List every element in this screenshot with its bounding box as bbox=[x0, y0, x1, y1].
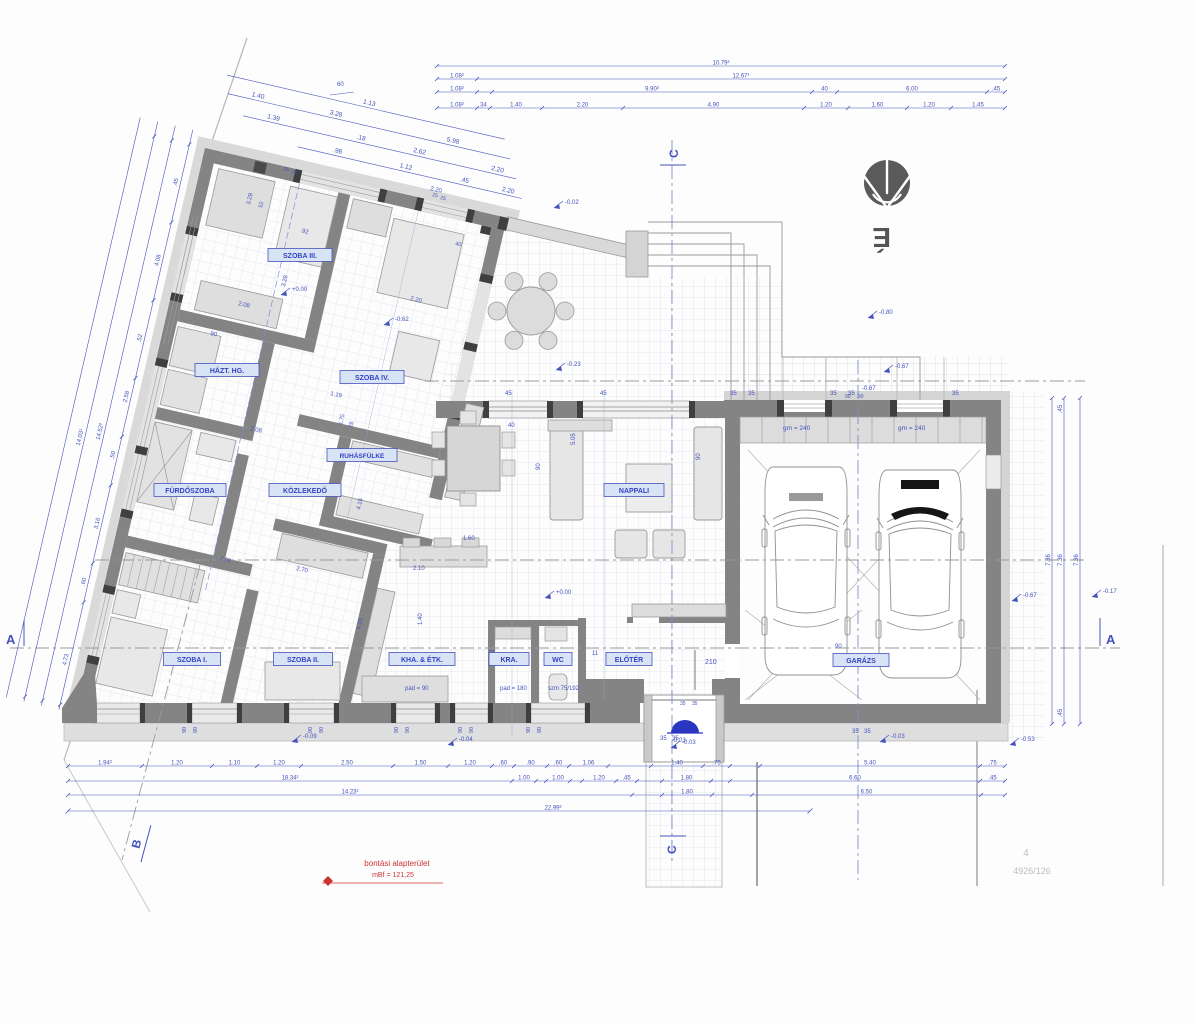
svg-text:C: C bbox=[667, 149, 681, 158]
svg-text:90: 90 bbox=[405, 727, 411, 733]
svg-text:4: 4 bbox=[1023, 848, 1029, 859]
svg-text:90: 90 bbox=[308, 727, 314, 733]
svg-text:WC: WC bbox=[552, 657, 564, 664]
svg-text:FÜRDŐSZOBA: FÜRDŐSZOBA bbox=[165, 486, 214, 495]
svg-text:-0.02: -0.02 bbox=[565, 200, 579, 206]
svg-text:12.67¹: 12.67¹ bbox=[732, 74, 749, 80]
svg-text:1.40: 1.40 bbox=[418, 613, 424, 625]
svg-text:1.20: 1.20 bbox=[171, 761, 183, 767]
svg-text:NAPPALI: NAPPALI bbox=[619, 488, 649, 495]
svg-text:RUHÁSFÜLKE: RUHÁSFÜLKE bbox=[340, 451, 385, 460]
svg-text:1.00: 1.00 bbox=[552, 776, 564, 782]
svg-text:-0.67: -0.67 bbox=[862, 386, 876, 392]
svg-text:35: 35 bbox=[852, 729, 859, 735]
svg-text:45: 45 bbox=[600, 391, 607, 397]
svg-text:1.20: 1.20 bbox=[464, 761, 476, 767]
svg-text:7.36: 7.36 bbox=[1058, 554, 1064, 566]
svg-text:6.60: 6.60 bbox=[849, 776, 861, 782]
svg-text:90: 90 bbox=[394, 727, 400, 733]
svg-text:90: 90 bbox=[537, 727, 543, 733]
svg-text:-0.67: -0.67 bbox=[1023, 593, 1037, 599]
svg-text:90: 90 bbox=[319, 727, 325, 733]
svg-text:-0.80: -0.80 bbox=[879, 310, 893, 316]
svg-text:2.10: 2.10 bbox=[413, 566, 425, 572]
svg-text:90: 90 bbox=[193, 727, 199, 733]
svg-text:1.08²: 1.08² bbox=[450, 87, 464, 93]
svg-text:-0.17: -0.17 bbox=[1103, 589, 1117, 595]
svg-text:.75: .75 bbox=[988, 761, 997, 767]
svg-text:1.40: 1.40 bbox=[671, 761, 683, 767]
svg-text:bontási alapterület: bontási alapterület bbox=[364, 859, 430, 868]
svg-text:-0.04: -0.04 bbox=[459, 737, 473, 743]
svg-text:35: 35 bbox=[864, 729, 871, 735]
svg-text:7.36: 7.36 bbox=[1074, 554, 1080, 566]
svg-text:mBf = 121,25: mBf = 121,25 bbox=[372, 872, 414, 879]
svg-text:szm 75/192: szm 75/192 bbox=[548, 686, 580, 692]
svg-text:35: 35 bbox=[660, 736, 667, 742]
svg-text:6.50: 6.50 bbox=[861, 790, 873, 796]
svg-text:C: C bbox=[665, 845, 679, 854]
svg-text:90: 90 bbox=[458, 727, 464, 733]
svg-text:1.94²: 1.94² bbox=[98, 761, 112, 767]
svg-text:.45: .45 bbox=[622, 776, 631, 782]
svg-text:.45: .45 bbox=[1058, 708, 1064, 717]
svg-text:-0.03: -0.03 bbox=[891, 734, 905, 740]
svg-text:KHA. & ÉTK.: KHA. & ÉTK. bbox=[401, 655, 443, 664]
svg-text:35: 35 bbox=[748, 391, 755, 397]
svg-text:.75: .75 bbox=[712, 761, 721, 767]
svg-text:1.80: 1.80 bbox=[681, 776, 693, 782]
svg-text:1.20: 1.20 bbox=[273, 761, 285, 767]
svg-text:-0.53: -0.53 bbox=[1021, 737, 1035, 743]
svg-text:1.06: 1.06 bbox=[583, 761, 595, 767]
svg-text:90: 90 bbox=[469, 727, 475, 733]
svg-text:SZOBA IV.: SZOBA IV. bbox=[355, 375, 389, 382]
svg-text:14.23²: 14.23² bbox=[341, 790, 358, 796]
svg-text:1.20: 1.20 bbox=[820, 103, 832, 109]
svg-text:6.00: 6.00 bbox=[906, 87, 918, 93]
svg-text:18.34²: 18.34² bbox=[281, 776, 298, 782]
svg-text:.45: .45 bbox=[988, 776, 997, 782]
svg-text:1.20: 1.20 bbox=[593, 776, 605, 782]
svg-text:SZOBA I.: SZOBA I. bbox=[177, 657, 207, 664]
svg-text:KÖZLEKEDŐ: KÖZLEKEDŐ bbox=[283, 486, 328, 495]
svg-text:35: 35 bbox=[692, 701, 698, 707]
svg-text:22.99²: 22.99² bbox=[544, 806, 561, 812]
svg-text:90: 90 bbox=[845, 394, 851, 400]
svg-text:90: 90 bbox=[696, 453, 702, 460]
svg-text:34: 34 bbox=[480, 103, 487, 109]
svg-text:1.45: 1.45 bbox=[972, 103, 984, 109]
svg-text:1.10: 1.10 bbox=[229, 761, 241, 767]
svg-text:.90: .90 bbox=[526, 761, 535, 767]
svg-text:gm = 240: gm = 240 bbox=[783, 425, 811, 432]
svg-text:-0.62: -0.62 bbox=[395, 317, 409, 323]
svg-text:1.60: 1.60 bbox=[463, 536, 475, 542]
svg-text:210: 210 bbox=[705, 659, 717, 666]
svg-text:.60: .60 bbox=[554, 761, 563, 767]
svg-text:-0.09: -0.09 bbox=[303, 734, 317, 740]
svg-text:+0.00: +0.00 bbox=[556, 590, 572, 596]
svg-text:-0.67: -0.67 bbox=[895, 364, 909, 370]
svg-text:É: É bbox=[872, 222, 891, 253]
svg-text:1.08²: 1.08² bbox=[450, 103, 464, 109]
svg-text:HÁZT. HG.: HÁZT. HG. bbox=[210, 366, 244, 375]
svg-text:SZOBA II.: SZOBA II. bbox=[287, 657, 319, 664]
svg-text:10.79²: 10.79² bbox=[712, 61, 729, 67]
svg-text:GARÁZS: GARÁZS bbox=[846, 656, 876, 665]
svg-text:.45: .45 bbox=[1058, 404, 1064, 413]
svg-text:90: 90 bbox=[858, 394, 864, 400]
svg-text:ELŐTÉR: ELŐTÉR bbox=[615, 655, 643, 664]
svg-text:pad = 90: pad = 90 bbox=[405, 686, 429, 692]
svg-text:90: 90 bbox=[182, 727, 188, 733]
svg-text:KRA.: KRA. bbox=[500, 657, 517, 664]
svg-text:-0.23: -0.23 bbox=[567, 362, 581, 368]
svg-text:A: A bbox=[6, 632, 16, 647]
svg-text:A: A bbox=[1106, 632, 1116, 647]
svg-text:35: 35 bbox=[952, 391, 959, 397]
svg-text:35: 35 bbox=[730, 391, 737, 397]
svg-text:40: 40 bbox=[821, 87, 828, 93]
svg-text:gm = 240: gm = 240 bbox=[898, 425, 926, 432]
svg-text:90: 90 bbox=[536, 463, 542, 470]
svg-text:90: 90 bbox=[526, 727, 532, 733]
svg-text:35: 35 bbox=[830, 391, 837, 397]
svg-text:60: 60 bbox=[337, 82, 344, 88]
svg-text:pad = 180: pad = 180 bbox=[500, 686, 528, 692]
svg-text:SZOBA III.: SZOBA III. bbox=[283, 253, 317, 260]
svg-text:9.90²: 9.90² bbox=[645, 87, 659, 93]
svg-text:.60: .60 bbox=[499, 761, 508, 767]
svg-text:1.50: 1.50 bbox=[415, 761, 427, 767]
svg-text:4926/126: 4926/126 bbox=[1013, 866, 1051, 876]
svg-text:1.80: 1.80 bbox=[681, 790, 693, 796]
svg-text:7.36: 7.36 bbox=[1046, 554, 1052, 566]
svg-text:-0.03: -0.03 bbox=[682, 740, 696, 746]
svg-text:+0.00: +0.00 bbox=[292, 287, 308, 293]
svg-text:.45: .45 bbox=[992, 87, 1001, 93]
svg-text:2.20: 2.20 bbox=[577, 103, 589, 109]
svg-text:2.50: 2.50 bbox=[341, 761, 353, 767]
svg-text:4.90: 4.90 bbox=[708, 103, 720, 109]
svg-text:90: 90 bbox=[835, 644, 842, 650]
svg-text:45: 45 bbox=[505, 391, 512, 397]
svg-text:1.00: 1.00 bbox=[518, 776, 530, 782]
svg-text:1.08²: 1.08² bbox=[450, 74, 464, 80]
svg-text:35: 35 bbox=[672, 736, 679, 742]
svg-text:1.40: 1.40 bbox=[510, 103, 522, 109]
svg-text:5.40: 5.40 bbox=[864, 761, 876, 767]
svg-text:5.05: 5.05 bbox=[571, 433, 577, 445]
svg-text:1.20: 1.20 bbox=[923, 103, 935, 109]
svg-text:40: 40 bbox=[508, 423, 515, 429]
svg-text:1.60: 1.60 bbox=[872, 103, 884, 109]
svg-text:35: 35 bbox=[680, 701, 686, 707]
svg-text:11: 11 bbox=[592, 651, 599, 657]
